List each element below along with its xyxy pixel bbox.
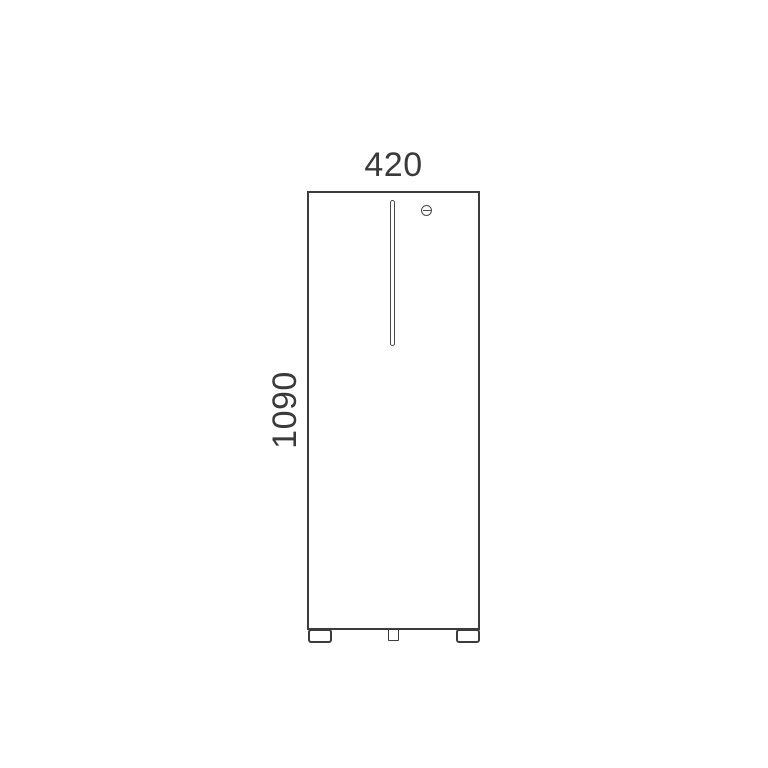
cabinet-foot-right: [456, 629, 480, 643]
technical-drawing-canvas: 420 1090: [0, 0, 768, 768]
cabinet-outline: [307, 191, 480, 630]
cabinet-foot-left: [308, 629, 332, 643]
width-dimension-label: 420: [307, 148, 480, 182]
door-handle: [390, 200, 395, 346]
lock-icon: [421, 205, 432, 216]
cabinet-foot-center: [388, 629, 399, 641]
height-dimension-label: 1090: [268, 371, 302, 449]
